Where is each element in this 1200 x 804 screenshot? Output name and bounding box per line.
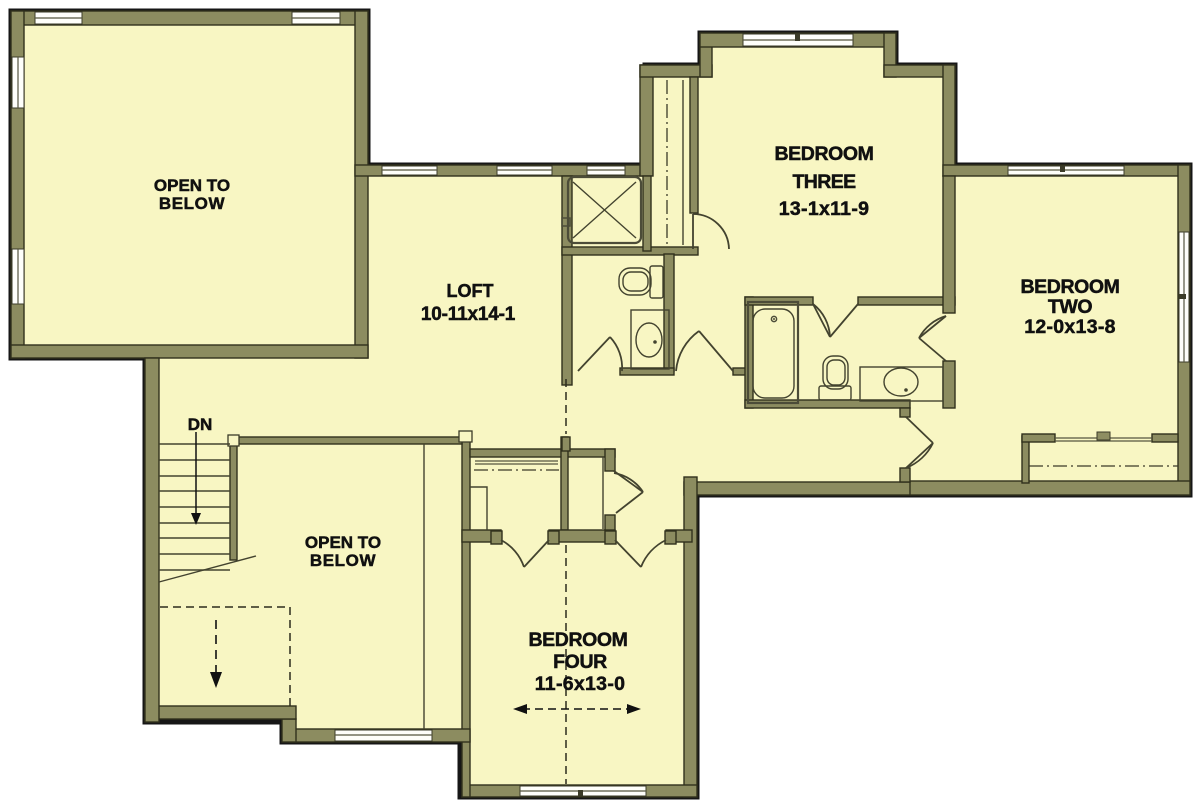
svg-text:13-1x11-9: 13-1x11-9 bbox=[779, 198, 870, 220]
svg-text:OPEN TO: OPEN TO bbox=[305, 533, 381, 552]
svg-text:OPEN TO: OPEN TO bbox=[154, 176, 230, 195]
svg-text:TWO: TWO bbox=[1048, 296, 1093, 318]
svg-text:BEDROOM: BEDROOM bbox=[528, 629, 627, 651]
svg-text:BELOW: BELOW bbox=[159, 194, 226, 213]
svg-text:11-6x13-0: 11-6x13-0 bbox=[535, 673, 626, 695]
svg-text:DN: DN bbox=[188, 415, 213, 434]
svg-text:BELOW: BELOW bbox=[310, 551, 377, 570]
svg-text:LOFT: LOFT bbox=[447, 281, 494, 301]
svg-text:BEDROOM: BEDROOM bbox=[1020, 276, 1119, 298]
svg-text:BEDROOM: BEDROOM bbox=[774, 143, 873, 165]
svg-text:THREE: THREE bbox=[792, 171, 856, 193]
svg-text:10-11x14-1: 10-11x14-1 bbox=[421, 304, 516, 325]
svg-text:12-0x13-8: 12-0x13-8 bbox=[1024, 316, 1116, 338]
svg-text:FOUR: FOUR bbox=[553, 651, 607, 673]
